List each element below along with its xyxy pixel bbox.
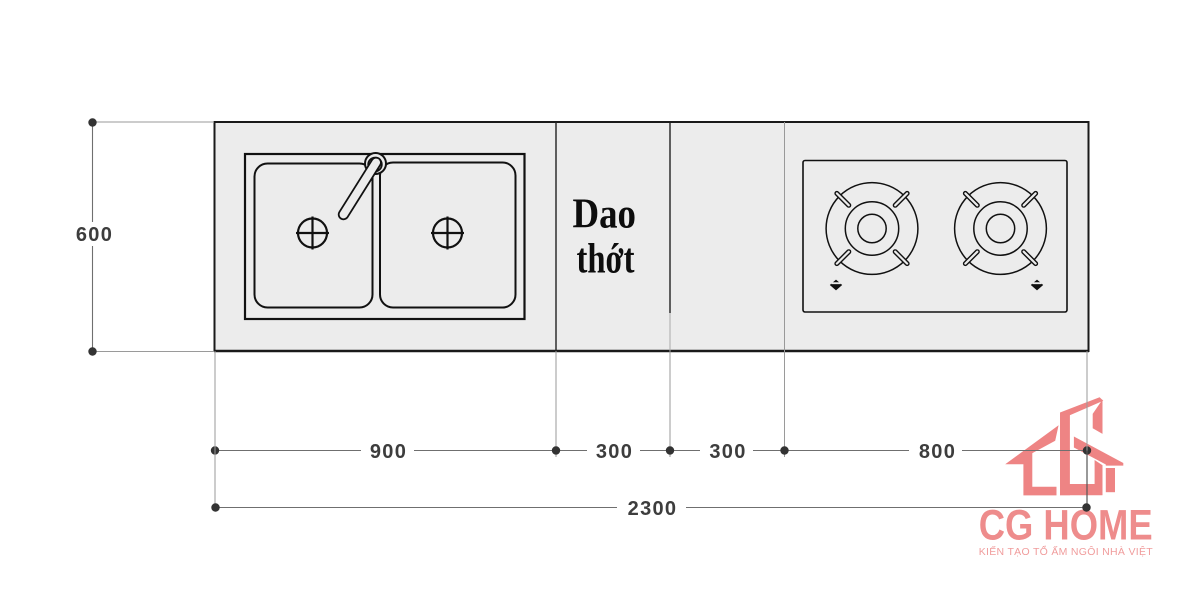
svg-text:Dao: Dao — [573, 192, 637, 238]
svg-text:900: 900 — [370, 441, 407, 463]
svg-text:KIẾN TẠO TỔ ẤM NGÔI NHÀ VIỆT: KIẾN TẠO TỔ ẤM NGÔI NHÀ VIỆT — [979, 545, 1154, 558]
svg-text:600: 600 — [76, 224, 113, 246]
svg-text:2300: 2300 — [628, 498, 678, 520]
svg-text:thớt: thớt — [577, 237, 635, 283]
svg-text:300: 300 — [596, 441, 633, 463]
svg-text:300: 300 — [709, 441, 746, 463]
svg-text:800: 800 — [919, 441, 956, 463]
svg-text:CG HOME: CG HOME — [979, 502, 1153, 550]
